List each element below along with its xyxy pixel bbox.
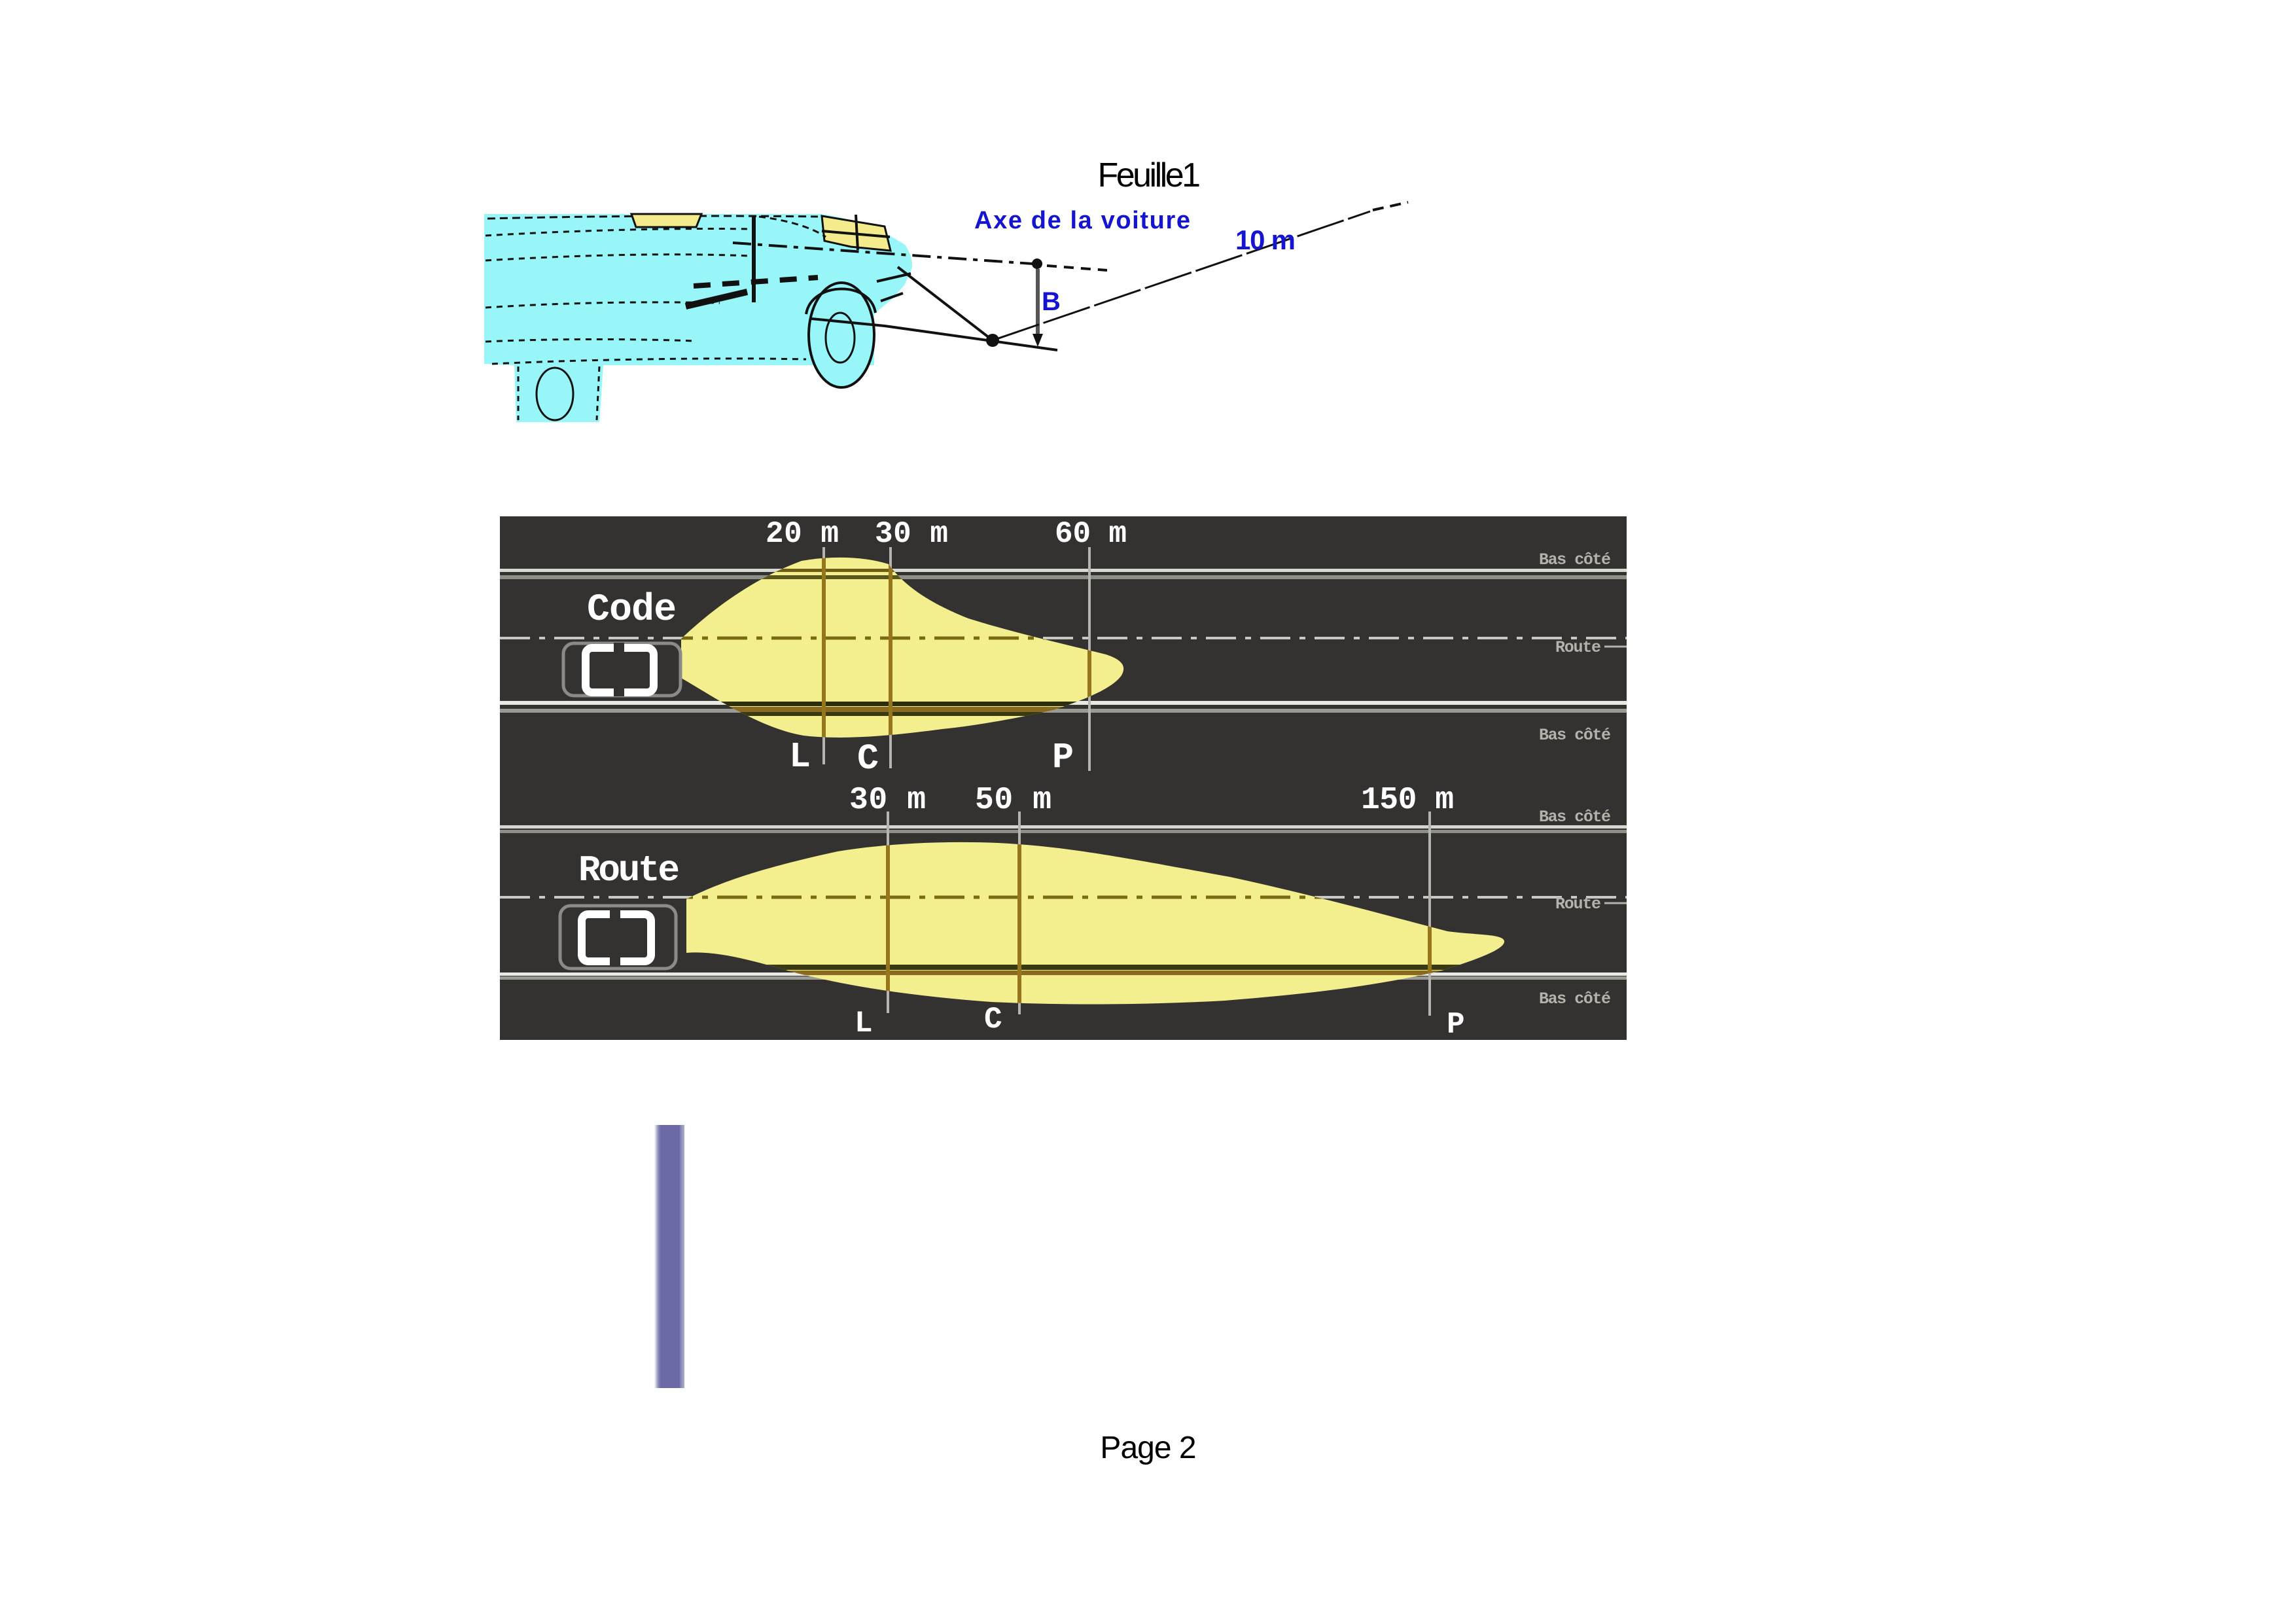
svg-text:P: P bbox=[1447, 1008, 1465, 1040]
svg-text:60 m: 60 m bbox=[1055, 517, 1127, 551]
svg-text:10 m: 10 m bbox=[1235, 224, 1296, 255]
svg-text:P: P bbox=[1052, 737, 1074, 778]
svg-text:Bas côté: Bas côté bbox=[1539, 808, 1611, 827]
svg-text:150 m: 150 m bbox=[1361, 783, 1454, 818]
svg-text:30 m: 30 m bbox=[849, 783, 926, 818]
svg-text:Bas côté: Bas côté bbox=[1539, 726, 1611, 745]
svg-text:Route: Route bbox=[1555, 895, 1601, 914]
svg-text:C: C bbox=[857, 738, 879, 779]
svg-text:B: B bbox=[1042, 287, 1061, 316]
svg-text:Route: Route bbox=[1555, 638, 1601, 657]
svg-text:L: L bbox=[855, 1007, 873, 1040]
svg-text:C: C bbox=[984, 1003, 1002, 1037]
svg-text:50 m: 50 m bbox=[975, 783, 1051, 818]
svg-text:20 m: 20 m bbox=[766, 517, 839, 551]
svg-text:Bas côté: Bas côté bbox=[1539, 990, 1611, 1008]
svg-text:Route: Route bbox=[578, 849, 680, 891]
svg-text:Bas côté: Bas côté bbox=[1539, 550, 1611, 569]
svg-text:Code: Code bbox=[587, 589, 677, 632]
svg-text:Axe de la voiture: Axe de la voiture bbox=[974, 207, 1190, 234]
svg-text:30 m: 30 m bbox=[875, 517, 948, 551]
svg-text:L: L bbox=[789, 736, 811, 777]
